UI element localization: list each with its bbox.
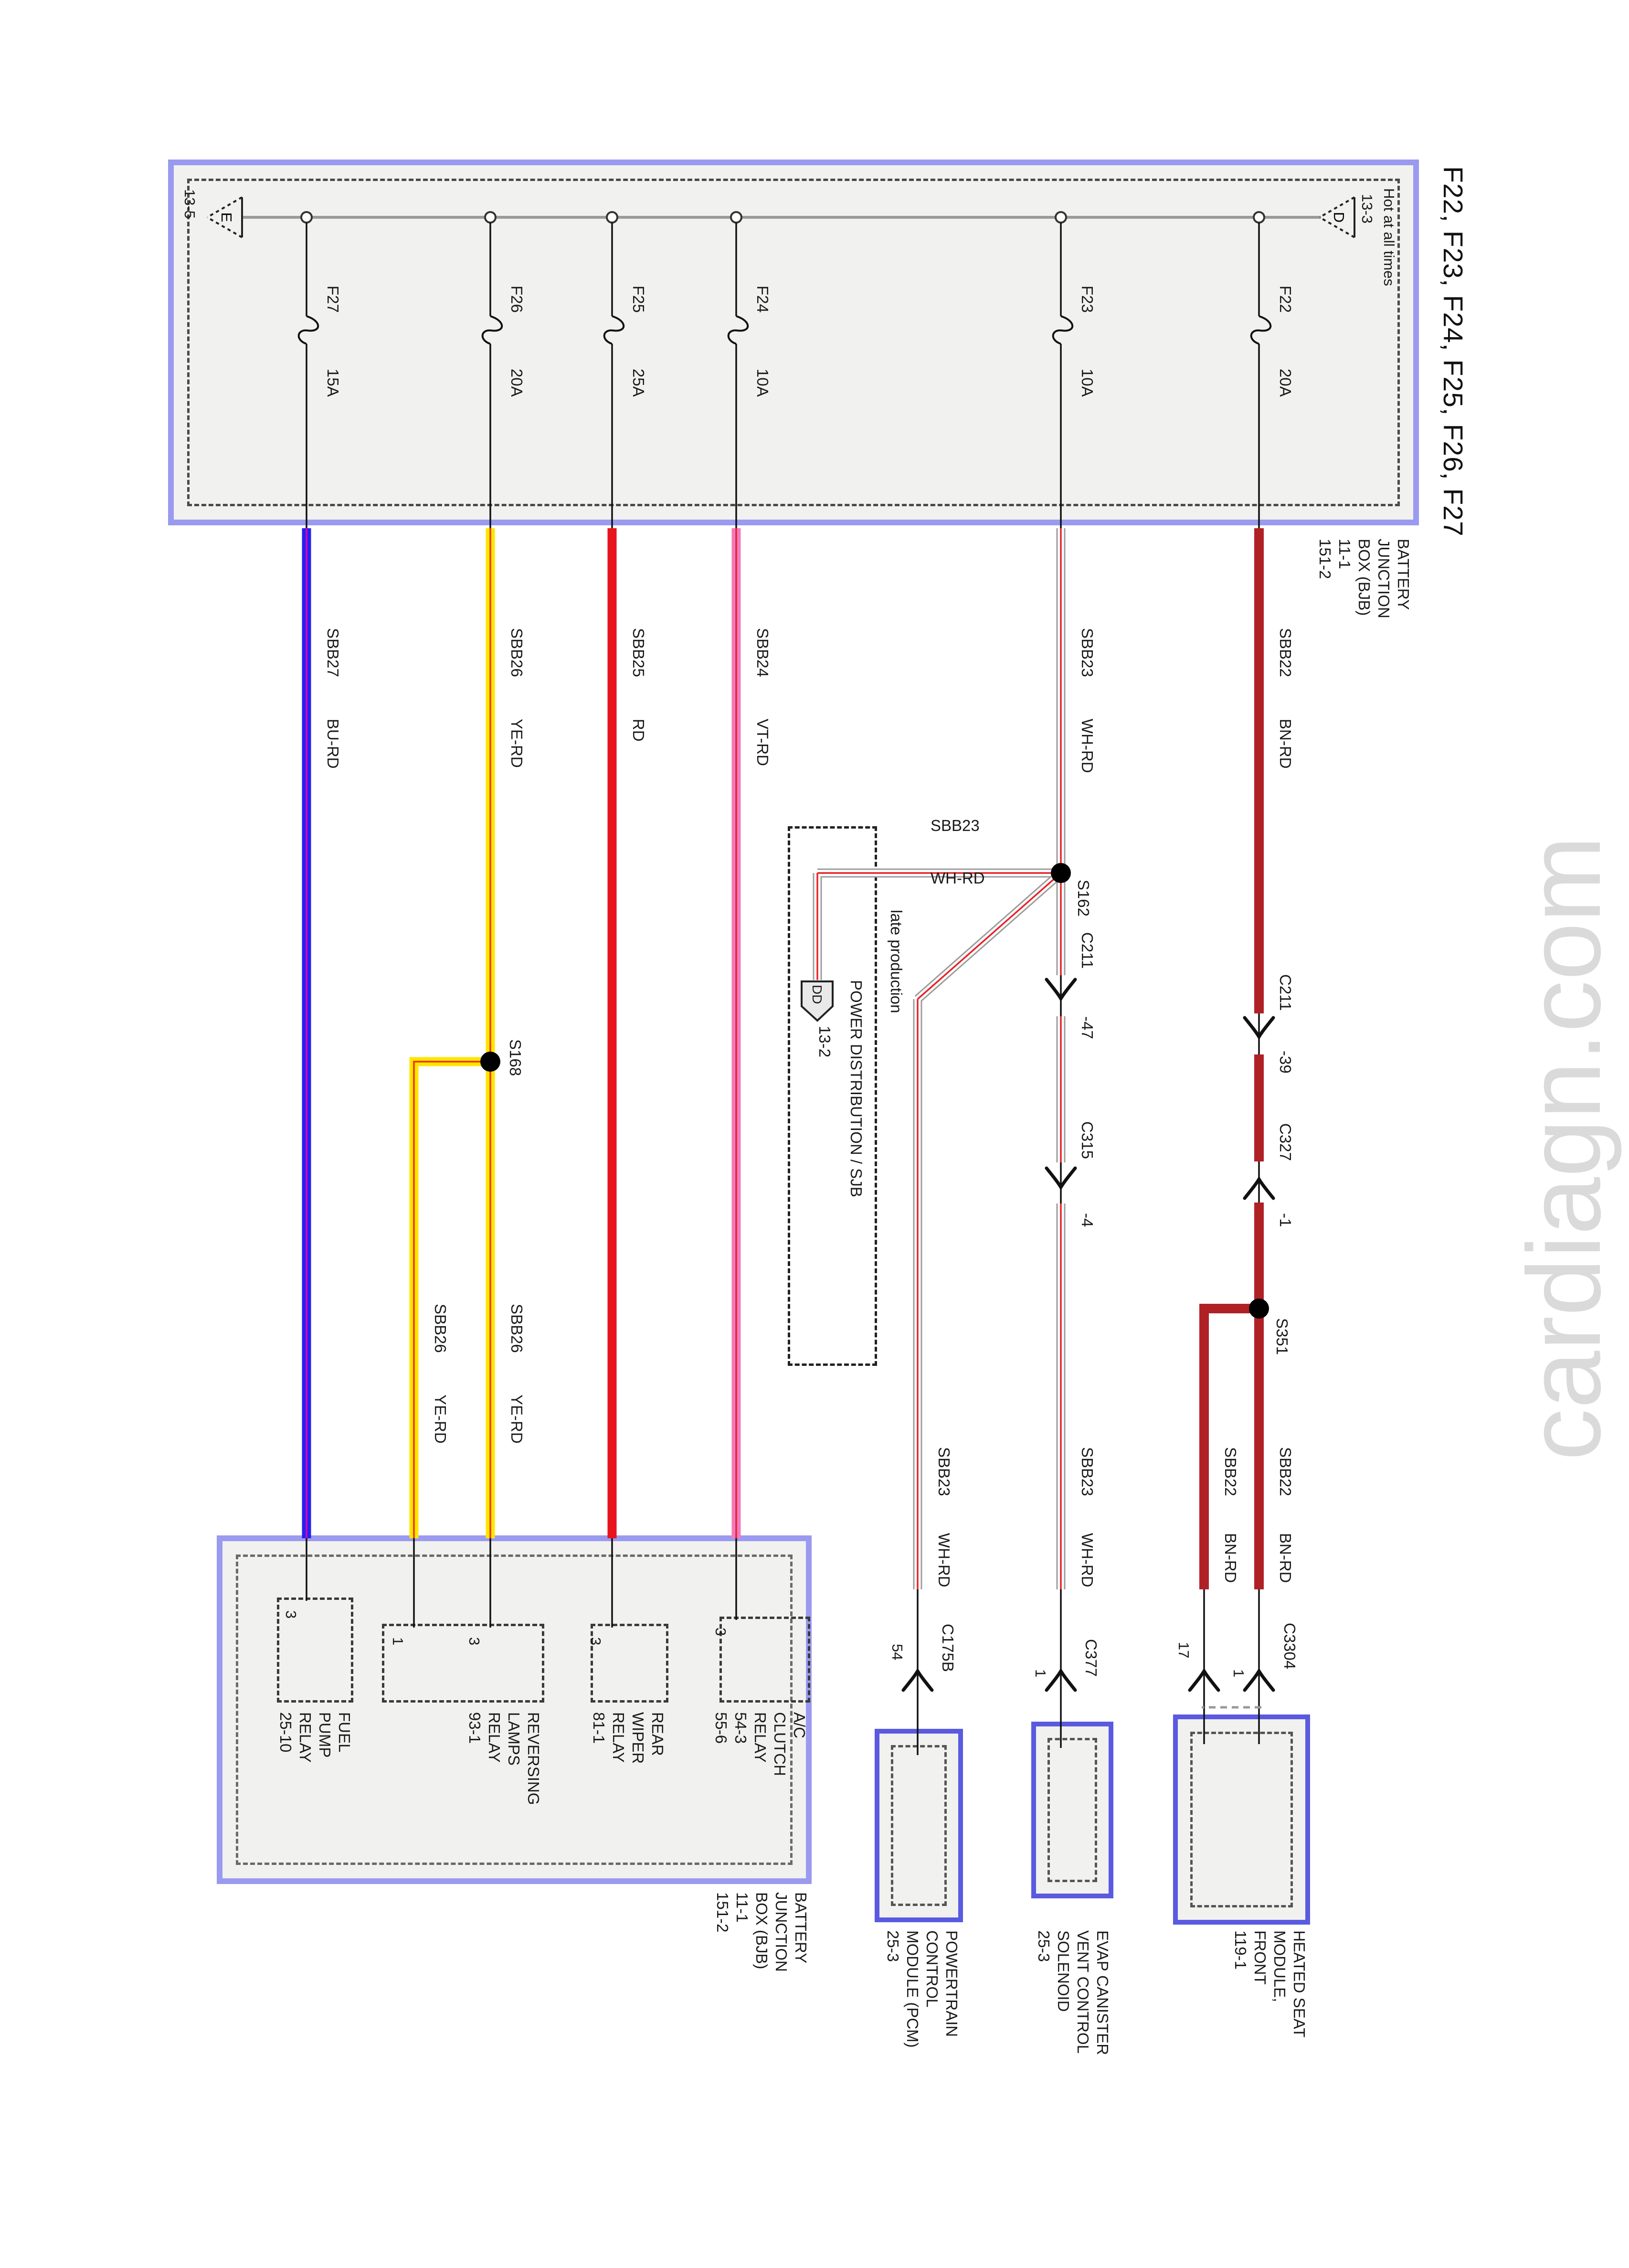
svg-text:D: D <box>1331 212 1347 223</box>
reversing-lamps-relay-label: REVERSINGLAMPSRELAY93-1 <box>465 1712 543 1805</box>
sbb23-far-color: WH-RD <box>1078 1533 1097 1587</box>
off-page-triangle-e: E <box>207 197 242 237</box>
sbb23-color: WH-RD <box>1078 719 1097 773</box>
fuse-f26-name: F26 <box>507 286 527 313</box>
splice-dots <box>480 863 1269 1319</box>
pcm-label: POWERTRAINCONTROLMODULE (PCM)25-3 <box>883 1930 962 2048</box>
c377-label: C377 <box>1081 1639 1101 1677</box>
watermark: cardiagn.com <box>1505 836 1624 1461</box>
bjb-bottom-label: BATTERYJUNCTIONBOX (BJB)11-1151-2 <box>713 1892 811 1972</box>
sbb23-vertical-color: WH-RD <box>931 869 985 887</box>
fuse-f24-amp: 10A <box>753 369 772 397</box>
fuse-f27-amp: 15A <box>323 369 343 397</box>
sbb25-color: RD <box>629 719 648 742</box>
wire-sbb22 <box>1204 528 1259 1589</box>
fuse-elements <box>299 316 1271 344</box>
c377-pin: 1 <box>1031 1669 1050 1677</box>
sbb22-color: BN-RD <box>1276 719 1295 769</box>
c211-sbb22-label: C211 <box>1276 974 1295 1011</box>
s162-label: S162 <box>1074 880 1093 916</box>
s168-label: S168 <box>506 1039 525 1076</box>
bjb-top-label: BATTERYJUNCTIONBOX (BJB)11-1151-2 <box>1315 539 1413 618</box>
dd-flag-label: DD <box>807 985 827 1004</box>
dd-page-ref: 13-2 <box>815 1026 835 1057</box>
sbb26-mid-label: SBB26 <box>507 1304 527 1353</box>
bus-top-page-ref: 13-3 <box>1357 194 1377 224</box>
fuse-f22-amp: 20A <box>1276 369 1295 397</box>
component-connector-arrows <box>903 1179 1273 1690</box>
fuse-f25-name: F25 <box>629 286 648 313</box>
sbb25-label: SBB25 <box>629 628 648 677</box>
c327-pin: -1 <box>1276 1213 1295 1227</box>
bus-bottom-page-ref: 13-5 <box>180 189 200 219</box>
connector-leads <box>307 975 1259 1755</box>
sbb26-branch-color: YE-RD <box>431 1395 450 1444</box>
sbb26-branch-label: SBB26 <box>431 1304 450 1353</box>
sbb23-far-label: SBB23 <box>1078 1447 1097 1496</box>
wire-sbb26 <box>414 528 490 1538</box>
sbb23-pcm-color: WH-RD <box>934 1533 954 1587</box>
c3304-pin-1: 1 <box>1229 1669 1248 1677</box>
wiring-diagram-page: cardiagn.com F22, F23, F24, F25, F26, F2… <box>0 0 1629 2268</box>
splice-s162 <box>1051 863 1071 883</box>
c211-sbb23-pin: -47 <box>1078 1016 1097 1039</box>
splice-s168 <box>480 1052 500 1072</box>
splice-s351 <box>1249 1299 1269 1319</box>
sbb26-mid-color: YE-RD <box>507 1395 527 1444</box>
rear-wiper-pin: 3 <box>586 1637 605 1645</box>
fuse-f22-name: F22 <box>1276 286 1295 313</box>
c211-sbb23-label: C211 <box>1078 932 1097 969</box>
fuse-leads <box>307 223 1259 528</box>
sbb24-label: SBB24 <box>753 628 772 677</box>
sbb26-label: SBB26 <box>507 628 527 677</box>
sbb22-far-label: SBB22 <box>1276 1447 1295 1496</box>
c3304-label: C3304 <box>1280 1623 1300 1669</box>
heated-seat-label: HEATED SEATMODULE,FRONT119-1 <box>1231 1930 1309 2037</box>
svg-text:E: E <box>218 213 235 223</box>
c327-label: C327 <box>1276 1123 1295 1161</box>
sbb22-branch-label: SBB22 <box>1221 1447 1240 1496</box>
sbb22-label: SBB22 <box>1276 628 1295 677</box>
reversing-pin1: 1 <box>388 1637 408 1645</box>
page-title: F22, F23, F24, F25, F26, F27 <box>1437 166 1469 537</box>
c315-label: C315 <box>1078 1121 1097 1159</box>
sbb23-label: SBB23 <box>1078 628 1097 677</box>
sbb22-far-color: BN-RD <box>1276 1533 1295 1583</box>
reversing-pin3: 3 <box>465 1637 484 1645</box>
fuse-f26-amp: 20A <box>507 369 527 397</box>
fuel-pump-pin: 3 <box>281 1610 301 1618</box>
evap-label: EVAP CANISTERVENT CONTROLSOLENOID25-3 <box>1034 1930 1112 2055</box>
c211-sbb22-pin: -39 <box>1276 1051 1295 1074</box>
fuse-f24-name: F24 <box>753 286 772 313</box>
sbb27-label: SBB27 <box>323 628 343 677</box>
sbb26-color: YE-RD <box>507 719 527 768</box>
fuse-f25-amp: 25A <box>629 369 648 397</box>
off-page-triangle-d: D <box>1320 197 1354 237</box>
sbb22-branch-color: BN-RD <box>1221 1533 1240 1583</box>
power-distribution-sjb-label: POWER DISTRIBUTION / SJB <box>846 980 866 1197</box>
sbb23-vertical-label: SBB23 <box>931 817 980 835</box>
wiring-svg: D E <box>0 0 1629 2268</box>
c175b-label: C175B <box>938 1624 958 1672</box>
ac-clutch-pin: 3 <box>711 1628 730 1636</box>
sbb27-color: BU-RD <box>323 719 343 769</box>
fuse-f23-name: F23 <box>1078 286 1097 313</box>
fuse-f23-amp: 10A <box>1078 369 1097 397</box>
c175b-pin: 54 <box>888 1644 907 1660</box>
fuse-f27-name: F27 <box>323 286 343 313</box>
fuel-pump-relay-label: FUELPUMPRELAY25-10 <box>276 1712 354 1763</box>
late-production-note: late production <box>887 910 906 1013</box>
ac-clutch-relay-label: A/CCLUTCHRELAY54-355-6 <box>711 1712 809 1776</box>
sbb23-pcm-label: SBB23 <box>934 1447 954 1496</box>
hot-at-all-times-label: Hot at all times <box>1379 188 1399 286</box>
c3304-pin-17: 17 <box>1174 1642 1194 1658</box>
sbb24-color: VT-RD <box>753 719 772 766</box>
rear-wiper-relay-label: REARWIPERRELAY81-1 <box>589 1712 667 1764</box>
c315-pin: -4 <box>1078 1213 1097 1227</box>
s351-label: S351 <box>1272 1318 1292 1355</box>
